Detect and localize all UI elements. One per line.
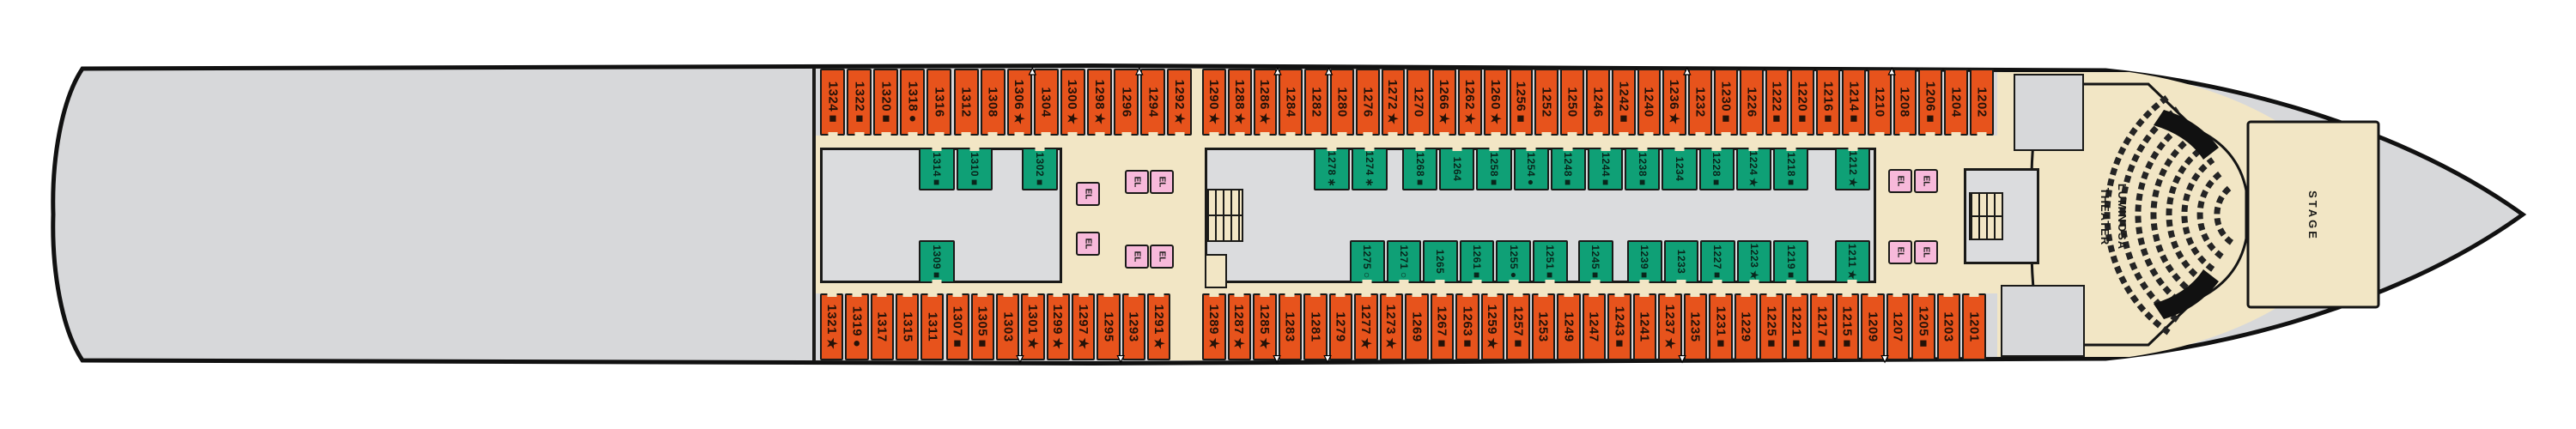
cabin-1316[interactable]: 1316: [927, 69, 951, 136]
elevator-icon[interactable]: EL: [1150, 170, 1174, 194]
cabin-number: 1263 ■: [1460, 306, 1474, 347]
cabin-1225[interactable]: 1225 ■: [1759, 293, 1783, 360]
cabin-1232[interactable]: 1232: [1688, 69, 1712, 136]
cabin-1275[interactable]: 1275 ○: [1350, 240, 1385, 283]
cabin-number: 1258 ■: [1488, 152, 1500, 185]
cabin-number: 1256 ■: [1514, 82, 1528, 123]
cabin-number: 1239 ■: [1638, 245, 1650, 278]
cabin-1233[interactable]: 1233: [1664, 240, 1699, 283]
cabin-number: 1251 ■: [1544, 245, 1556, 278]
cabin-1295[interactable]: 1295▼: [1097, 293, 1120, 360]
cabin-number: 1319 ●: [849, 306, 864, 347]
elevator-icon[interactable]: EL: [1125, 170, 1149, 194]
cabin-number: 1279: [1334, 311, 1348, 341]
cabin-1215[interactable]: 1215 ■: [1836, 293, 1860, 360]
cabin-number: 1276: [1360, 87, 1375, 117]
cabin-1306[interactable]: 1306 ★▲: [1007, 69, 1032, 136]
cabin-number: 1307 ■: [951, 306, 965, 347]
cabin-number: 1296: [1119, 87, 1133, 117]
elevator-label: EL: [1896, 247, 1905, 258]
cabin-number: 1275 ○: [1361, 245, 1373, 278]
cabin-1260[interactable]: 1260 ★: [1484, 69, 1508, 136]
cabin-1269[interactable]: 1269: [1405, 293, 1429, 360]
cabin-number: 1265: [1434, 250, 1446, 275]
cabin-number: 1245 ■: [1589, 245, 1601, 278]
cabin-number: 1288 ★: [1232, 80, 1248, 125]
cabin-number: 1308: [986, 87, 1000, 117]
cabin-1255[interactable]: 1255 ●: [1496, 240, 1531, 283]
cabin-number: 1295: [1101, 311, 1115, 341]
cabin-1290[interactable]: 1290 ★: [1202, 69, 1226, 136]
cabin-1250[interactable]: 1250: [1560, 69, 1584, 136]
cabin-1273[interactable]: 1273 ★: [1380, 293, 1404, 360]
cabin-1258[interactable]: 1258 ■: [1476, 148, 1511, 190]
elevator-icon[interactable]: EL: [1888, 240, 1912, 264]
cabin-1211[interactable]: 1211 ★: [1835, 240, 1870, 283]
cabin-number: 1250: [1565, 87, 1580, 117]
cabin-number: 1322 ■: [852, 82, 866, 123]
cabin-1263[interactable]: 1263 ■: [1455, 293, 1479, 360]
cabin-number: 1252: [1540, 87, 1554, 117]
connecting-door-triangle-icon: ▲: [1681, 65, 1692, 76]
cabin-number: 1231 ■: [1713, 306, 1728, 347]
cabin-1291[interactable]: 1291 ★: [1147, 293, 1170, 360]
cabin-1204[interactable]: 1204: [1944, 69, 1968, 136]
cabin-number: 1266 ★: [1437, 80, 1452, 125]
connecting-door-triangle-icon: ▼: [1272, 353, 1283, 364]
cabin-number: 1242 ■: [1616, 82, 1631, 123]
cabin-number: 1280: [1334, 87, 1349, 117]
cabin-1205[interactable]: 1205 ■: [1911, 293, 1935, 360]
elevator-label: EL: [1922, 176, 1931, 187]
cabin-number: 1299 ★: [1050, 305, 1066, 350]
cabin-1219[interactable]: 1219 ■: [1773, 240, 1808, 283]
cabin-number: 1283: [1283, 311, 1297, 341]
cabin-number: 1217 ■: [1814, 306, 1829, 347]
cabin-1283[interactable]: 1283: [1279, 293, 1303, 360]
cabin-number: 1216 ■: [1821, 82, 1836, 123]
connecting-door-triangle-icon: ▲: [1323, 65, 1334, 76]
cabin-number: 1255 ●: [1508, 245, 1520, 278]
cabin-number: 1272 ★: [1385, 80, 1400, 125]
cabin-number: 1261 ■: [1471, 245, 1483, 278]
cabin-1302[interactable]: 1302 ■: [1022, 148, 1058, 190]
cabin-1317[interactable]: 1317: [871, 293, 894, 360]
cabin-1320[interactable]: 1320 ■: [873, 69, 898, 136]
connecting-door-triangle-icon: ▲: [1133, 65, 1145, 76]
cabin-1262[interactable]: 1262 ★: [1458, 69, 1482, 136]
elevator-label: EL: [1157, 177, 1167, 188]
cabin-1245[interactable]: 1245 ■: [1578, 240, 1613, 283]
elevator-icon[interactable]: EL: [1076, 182, 1100, 206]
cabin-1312[interactable]: 1312: [954, 69, 979, 136]
cabin-number: 1274 ∗: [1364, 151, 1376, 187]
cabin-number: 1202: [1974, 87, 1989, 117]
cabin-1315[interactable]: 1315: [896, 293, 919, 360]
cabin-1242[interactable]: 1242 ■: [1612, 69, 1636, 136]
cabin-number: 1292 ★: [1172, 80, 1188, 125]
cabin-1238[interactable]: 1238 ■: [1625, 148, 1660, 190]
cabin-number: 1298 ★: [1092, 80, 1108, 125]
cabin-number: 1236 ★: [1667, 80, 1682, 125]
cabin-number: 1254 ●: [1525, 152, 1537, 185]
cabin-number: 1232: [1693, 87, 1708, 117]
cabin-number: 1278 ∗: [1326, 151, 1338, 187]
cabin-1247[interactable]: 1247: [1583, 293, 1607, 360]
cabin-1308[interactable]: 1308: [981, 69, 1005, 136]
cabin-1265[interactable]: 1265: [1423, 240, 1458, 283]
cabin-number: 1221 ■: [1789, 306, 1804, 347]
theater-name-line1: LUMINOSA: [2114, 183, 2131, 249]
cabin-1240[interactable]: 1240: [1637, 69, 1662, 136]
cabin-1257[interactable]: 1257 ■: [1506, 293, 1530, 360]
connecting-door-triangle-icon: ▲: [1886, 65, 1898, 76]
cabin-number: 1270: [1412, 87, 1426, 117]
forward-stairs[interactable]: [1969, 192, 2003, 240]
cabin-number: 1249: [1561, 311, 1576, 341]
cabin-number: 1229: [1739, 311, 1753, 341]
cabin-number: 1224 ★: [1747, 151, 1759, 188]
cabin-1297[interactable]: 1297 ★: [1072, 293, 1095, 360]
cabin-1208[interactable]: 1208: [1893, 69, 1917, 136]
connecting-door-triangle-icon: ▼: [1322, 353, 1334, 364]
cabin-1241[interactable]: 1241: [1633, 293, 1657, 360]
cabin-1236[interactable]: 1236 ★▲: [1662, 69, 1686, 136]
cabin-1256[interactable]: 1256 ■: [1510, 69, 1534, 136]
forward-service-room-top: [2014, 74, 2084, 151]
cabin-number: 1314 ■: [931, 152, 943, 185]
cabin-number: 1312: [959, 87, 974, 117]
cabin-number: 1208: [1898, 87, 1912, 117]
cabin-number: 1294: [1145, 87, 1160, 117]
cabin-1300[interactable]: 1300 ★: [1060, 69, 1085, 136]
cabin-number: 1259 ★: [1485, 305, 1500, 350]
cabin-1280[interactable]: 1280: [1330, 69, 1354, 136]
aft-bulkhead-line: [812, 69, 816, 360]
cabin-1229[interactable]: 1229: [1735, 293, 1759, 360]
cabin-1318[interactable]: 1318 ●: [900, 69, 925, 136]
cabin-1309[interactable]: 1309 ■: [919, 240, 955, 283]
cabin-number: 1205 ■: [1916, 306, 1930, 347]
cabin-number: 1304: [1039, 87, 1054, 117]
cabin-number: 1234: [1674, 157, 1686, 182]
cabin-1246[interactable]: 1246: [1586, 69, 1610, 136]
cabin-1303[interactable]: 1303▼: [996, 293, 1019, 360]
cabin-number: 1317: [875, 311, 890, 341]
cabin-number: 1215 ■: [1840, 306, 1855, 347]
cabin-1299[interactable]: 1299 ★: [1047, 293, 1070, 360]
cabin-1254[interactable]: 1254 ●: [1514, 148, 1549, 190]
connecting-door-triangle-icon: ▼: [1677, 353, 1688, 364]
cabin-number: 1271 ○: [1398, 245, 1410, 278]
cabin-1231[interactable]: 1231 ■: [1709, 293, 1733, 360]
cabin-number: 1228 ■: [1710, 152, 1722, 185]
aft-stairs[interactable]: [1206, 189, 1243, 242]
cabin-number: 1253: [1536, 311, 1551, 341]
cabin-1311[interactable]: 1311: [920, 293, 944, 360]
cabin-number: 1306 ★: [1012, 80, 1027, 125]
cabin-1274[interactable]: 1274 ∗: [1352, 148, 1388, 190]
cabin-1243[interactable]: 1243 ■: [1607, 293, 1631, 360]
cabin-number: 1218 ■: [1785, 152, 1797, 185]
cabin-1282[interactable]: 1282▲: [1304, 69, 1328, 136]
cabin-number: 1316: [932, 87, 946, 117]
cabin-number: 1300 ★: [1065, 80, 1080, 125]
cabin-number: 1290 ★: [1206, 80, 1222, 125]
cabin-number: 1285 ★: [1257, 305, 1273, 350]
cabin-number: 1230 ■: [1718, 82, 1733, 123]
cabin-1292[interactable]: 1292 ★: [1167, 69, 1192, 136]
cabin-1270[interactable]: 1270: [1406, 69, 1431, 136]
cabin-number: 1206 ■: [1923, 82, 1938, 123]
cabin-number: 1209: [1865, 311, 1880, 341]
cabin-1301[interactable]: 1301 ★: [1021, 293, 1044, 360]
cabin-number: 1309 ■: [931, 245, 943, 278]
cabin-1324[interactable]: 1324 ■: [820, 69, 845, 136]
elevator-label: EL: [1896, 176, 1905, 187]
cabin-number: 1235: [1688, 311, 1703, 341]
cabin-1220[interactable]: 1220 ■: [1790, 69, 1814, 136]
cabin-1298[interactable]: 1298 ★: [1087, 69, 1112, 136]
cabin-number: 1214 ■: [1846, 82, 1861, 123]
cabin-number: 1287 ★: [1231, 305, 1247, 350]
cabin-number: 1267 ■: [1435, 306, 1449, 347]
cabin-number: 1282: [1309, 87, 1324, 117]
cabin-1304[interactable]: 1304: [1034, 69, 1059, 136]
cabin-1267[interactable]: 1267 ■: [1431, 293, 1455, 360]
elevator-icon[interactable]: EL: [1150, 245, 1174, 269]
cabin-number: 1226: [1744, 87, 1759, 117]
deck-plan: 1324 ■1322 ■1320 ■1318 ●1316131213081306…: [0, 0, 2576, 429]
theater-name-line2: THEATER: [2098, 183, 2115, 249]
cabin-number: 1222 ■: [1770, 82, 1784, 123]
cabin-1222[interactable]: 1222 ■: [1765, 69, 1789, 136]
cabin-1248[interactable]: 1248 ■: [1551, 148, 1586, 190]
elevator-label: EL: [1084, 239, 1093, 250]
cabin-1249[interactable]: 1249: [1557, 293, 1581, 360]
cabin-1252[interactable]: 1252: [1534, 69, 1558, 136]
cabin-1237[interactable]: 1237 ★▼: [1658, 293, 1682, 360]
cabin-number: 1318 ●: [905, 82, 920, 123]
cabin-number: 1320 ■: [878, 82, 893, 123]
cabin-number: 1289 ★: [1206, 305, 1222, 350]
cabin-number: 1227 ■: [1711, 245, 1723, 278]
cabin-1294[interactable]: 1294: [1140, 69, 1165, 136]
cabin-1206[interactable]: 1206 ■: [1918, 69, 1942, 136]
cabin-1296[interactable]: 1296▲: [1114, 69, 1139, 136]
cabin-number: 1262 ★: [1462, 80, 1478, 125]
cabin-number: 1207: [1891, 311, 1905, 341]
cabin-1223[interactable]: 1223 ★: [1737, 240, 1772, 283]
forward-service-room-bottom: [2001, 285, 2085, 357]
cabin-1239[interactable]: 1239 ■: [1627, 240, 1662, 283]
cabin-1201[interactable]: 1201: [1962, 293, 1986, 360]
cabin-number: 1315: [900, 311, 914, 341]
cabin-1218[interactable]: 1218 ■: [1773, 148, 1808, 190]
cabin-number: 1248 ■: [1562, 152, 1574, 185]
cabin-1209[interactable]: 1209▼: [1861, 293, 1885, 360]
cabin-1244[interactable]: 1244 ■: [1588, 148, 1623, 190]
cabin-1217[interactable]: 1217 ■: [1810, 293, 1834, 360]
cabin-number: 1237 ★: [1662, 305, 1678, 350]
cabin-1321[interactable]: 1321 ★: [820, 293, 843, 360]
cabin-1214[interactable]: 1214 ■: [1842, 69, 1866, 136]
cabin-number: 1284: [1284, 87, 1298, 117]
cabin-number: 1257 ■: [1510, 306, 1525, 347]
cabin-1284[interactable]: 1284: [1279, 69, 1303, 136]
cabin-number: 1293: [1127, 311, 1141, 341]
cabin-number: 1219 ■: [1785, 245, 1797, 278]
cabin-number: 1268 ■: [1414, 152, 1426, 185]
cabin-number: 1223 ★: [1748, 244, 1760, 281]
stage-label: STAGE: [2277, 182, 2348, 249]
cabin-number: 1204: [1949, 87, 1964, 117]
cabin-1288[interactable]: 1288 ★: [1228, 69, 1252, 136]
cabin-1212[interactable]: 1212 ★: [1835, 148, 1870, 190]
cabin-1279[interactable]: 1279: [1329, 293, 1353, 360]
cabin-number: 1281: [1308, 311, 1322, 341]
cabin-1228[interactable]: 1228 ■: [1699, 148, 1735, 190]
cabin-number: 1246: [1590, 87, 1605, 117]
cabin-number: 1211 ★: [1846, 244, 1858, 280]
cabin-1314[interactable]: 1314 ■: [919, 148, 955, 190]
connecting-door-triangle-icon: ▼: [1115, 353, 1127, 364]
cabin-1261[interactable]: 1261 ■: [1460, 240, 1495, 283]
cabin-number: 1240: [1642, 87, 1656, 117]
cabin-number: 1203: [1941, 311, 1956, 341]
cabin-1221[interactable]: 1221 ■: [1785, 293, 1809, 360]
cabin-number: 1277 ★: [1358, 305, 1374, 350]
cabin-number: 1247: [1587, 311, 1601, 341]
cabin-1224[interactable]: 1224 ★: [1736, 148, 1771, 190]
cabin-1268[interactable]: 1268 ■: [1402, 148, 1437, 190]
cabin-number: 1260 ★: [1488, 80, 1504, 125]
cabin-1266[interactable]: 1266 ★: [1432, 69, 1456, 136]
cabin-number: 1297 ★: [1076, 305, 1091, 350]
elevator-label: EL: [1084, 189, 1093, 200]
cabin-1203[interactable]: 1203: [1937, 293, 1961, 360]
cabin-number: 1305 ■: [975, 306, 990, 347]
cabin-1227[interactable]: 1227 ■: [1700, 240, 1735, 283]
cabin-number: 1286 ★: [1257, 80, 1273, 125]
cabin-1305[interactable]: 1305 ■: [971, 293, 994, 360]
elevator-icon[interactable]: EL: [1076, 232, 1100, 256]
cabin-1272[interactable]: 1272 ★: [1382, 69, 1406, 136]
cabin-1310[interactable]: 1310 ■: [957, 148, 993, 190]
cabin-number: 1321 ★: [824, 305, 840, 350]
cabin-1271[interactable]: 1271 ○: [1387, 240, 1422, 283]
elevator-icon[interactable]: EL: [1914, 169, 1938, 193]
cabin-1226[interactable]: 1226: [1740, 69, 1764, 136]
cabin-number: 1243 ■: [1612, 306, 1626, 347]
elevator-icon[interactable]: EL: [1888, 169, 1912, 193]
elevator-label: EL: [1922, 247, 1931, 258]
cabin-1230[interactable]: 1230 ■: [1714, 69, 1738, 136]
cabin-1286[interactable]: 1286 ★▲: [1254, 69, 1278, 136]
cabin-number: 1291 ★: [1151, 305, 1167, 350]
cabin-number: 1269: [1409, 311, 1424, 341]
aft-small-room: [1205, 254, 1227, 288]
cabin-number: 1244 ■: [1600, 152, 1612, 185]
elevator-label: EL: [1157, 251, 1167, 263]
cabin-1319[interactable]: 1319 ●: [845, 293, 868, 360]
cabin-number: 1301 ★: [1025, 305, 1041, 350]
cabin-1277[interactable]: 1277 ★: [1354, 293, 1378, 360]
connecting-door-triangle-icon: ▲: [1273, 65, 1284, 76]
cabin-number: 1310 ■: [969, 152, 981, 185]
connecting-door-triangle-icon: ▼: [1880, 353, 1891, 364]
cabin-1276[interactable]: 1276: [1356, 69, 1380, 136]
cabin-number: 1201: [1966, 311, 1981, 341]
cabin-number: 1233: [1675, 250, 1687, 275]
cabin-number: 1273 ★: [1383, 305, 1399, 350]
cabin-1322[interactable]: 1322 ■: [847, 69, 872, 136]
cabin-1202[interactable]: 1202: [1970, 69, 1994, 136]
cabin-1234[interactable]: 1234: [1662, 148, 1697, 190]
cabin-1278[interactable]: 1278 ∗: [1314, 148, 1350, 190]
cabin-number: 1302 ■: [1034, 152, 1046, 185]
elevator-icon[interactable]: EL: [1914, 240, 1938, 264]
cabin-number: 1264: [1451, 157, 1463, 182]
cabin-1253[interactable]: 1253: [1532, 293, 1556, 360]
cabin-1289[interactable]: 1289 ★: [1202, 293, 1226, 360]
connecting-door-triangle-icon: ▲: [1027, 65, 1038, 76]
cabin-number: 1212 ★: [1847, 151, 1859, 188]
elevator-label: EL: [1133, 251, 1142, 263]
cabin-1210[interactable]: 1210▲: [1868, 69, 1892, 136]
connecting-door-triangle-icon: ▼: [1015, 353, 1026, 364]
cabin-number: 1324 ■: [825, 82, 840, 123]
cabin-1293[interactable]: 1293: [1122, 293, 1145, 360]
cabin-1216[interactable]: 1216 ■: [1816, 69, 1840, 136]
cabin-1307[interactable]: 1307 ■: [946, 293, 969, 360]
cabin-1264[interactable]: 1264: [1439, 148, 1474, 190]
cabin-number: 1241: [1637, 311, 1652, 341]
cabin-1281[interactable]: 1281▼: [1303, 293, 1327, 360]
cabin-1235[interactable]: 1235: [1684, 293, 1708, 360]
cabin-1285[interactable]: 1285 ★▼: [1253, 293, 1277, 360]
cabin-1251[interactable]: 1251 ■: [1533, 240, 1568, 283]
elevator-icon[interactable]: EL: [1125, 245, 1149, 269]
theater-name-label: LUMINOSA THEATER: [2059, 161, 2169, 271]
cabin-1259[interactable]: 1259 ★: [1481, 293, 1505, 360]
cabin-number: 1210: [1872, 87, 1886, 117]
cabin-1207[interactable]: 1207: [1886, 293, 1911, 360]
cabin-number: 1238 ■: [1637, 152, 1649, 185]
cabin-1287[interactable]: 1287 ★: [1228, 293, 1252, 360]
cabin-number: 1303: [1000, 311, 1015, 341]
cabin-number: 1311: [925, 312, 939, 342]
cabin-number: 1220 ■: [1795, 82, 1810, 123]
elevator-label: EL: [1133, 177, 1142, 188]
cabin-number: 1225 ■: [1764, 306, 1778, 347]
